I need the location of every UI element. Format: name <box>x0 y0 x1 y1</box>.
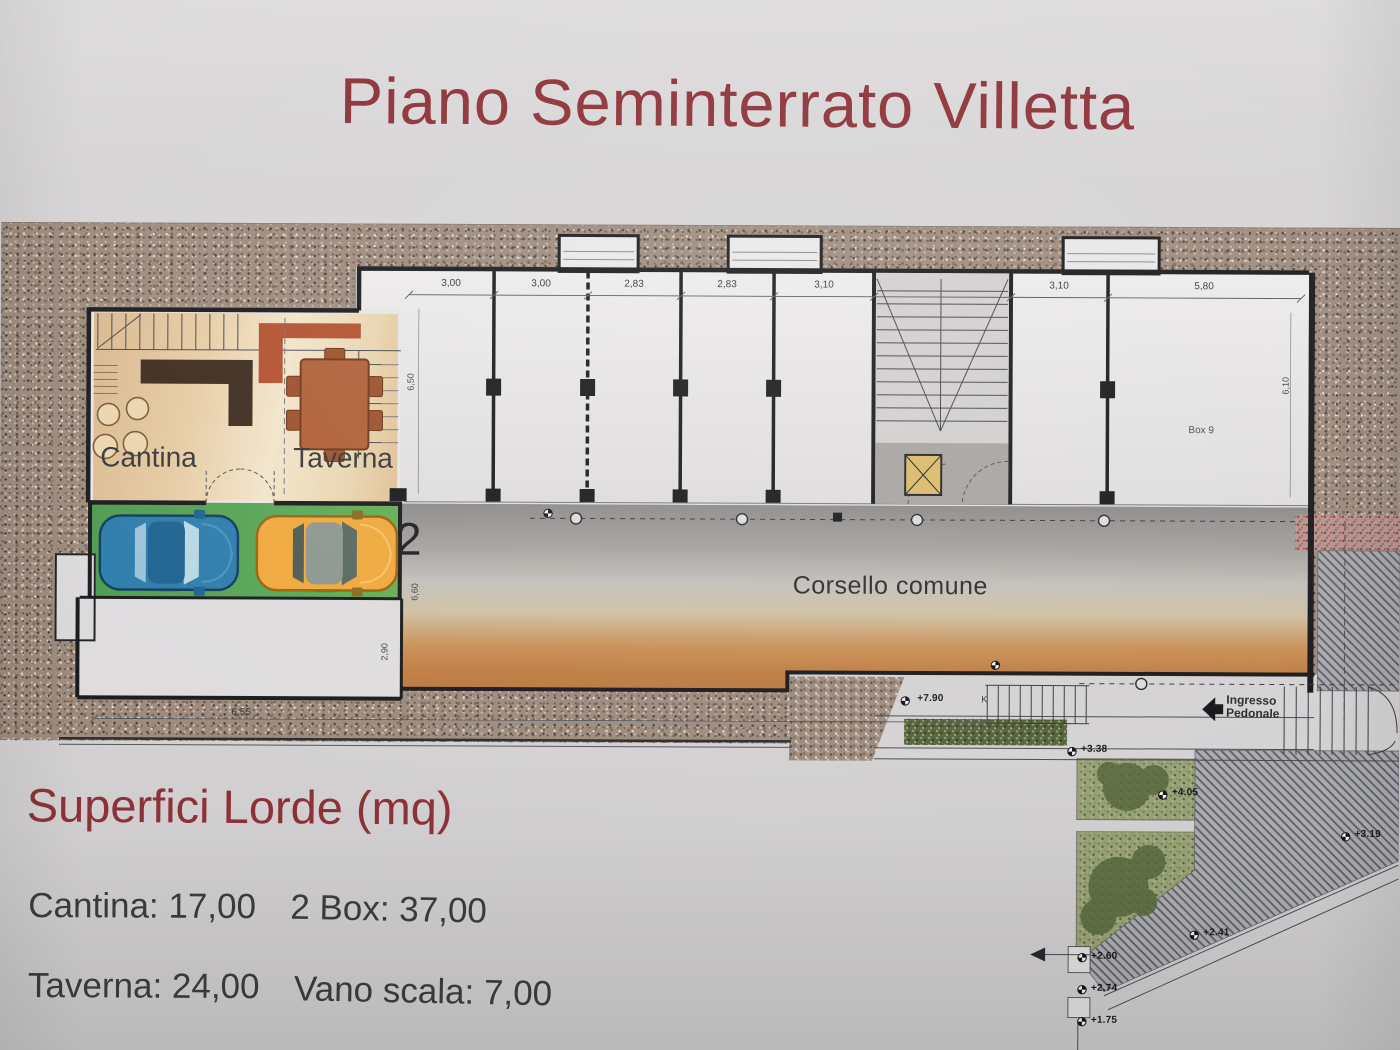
dim-box2: 3,00 <box>531 279 551 290</box>
elev-tip-3: +1.75 <box>1091 1016 1117 1027</box>
ingresso-pedonale-label: Ingresso Pedonale <box>1226 694 1301 721</box>
dim-room-depth: 2,90 <box>380 643 390 661</box>
elev-walkway: +7.90 <box>917 694 943 705</box>
elev-garden-mid: +4.05 <box>1172 788 1198 799</box>
interior-doors <box>206 469 274 503</box>
elev-path-right: +3.19 <box>1355 830 1381 841</box>
elev-path-mid: +2.41 <box>1203 928 1229 939</box>
elev-garden-top: +3.38 <box>1081 745 1107 756</box>
yellow-car <box>257 510 397 597</box>
dim-box5: 3,10 <box>814 280 834 291</box>
photo-wrapper: Piano Seminterrato Villetta Cantina Tave… <box>0 0 1400 1050</box>
dim-box1: 3,00 <box>441 279 461 290</box>
legend-vano-scala: Vano scala: 7,00 <box>294 971 553 1013</box>
scanned-floorplan-page: Piano Seminterrato Villetta Cantina Tave… <box>0 0 1400 1050</box>
legend-box: 2 Box: 37,00 <box>290 890 487 931</box>
dim-box9-depth: 6,10 <box>1282 377 1292 395</box>
legend-heading: Superfici Lorde (mq) <box>27 780 453 833</box>
dim-garage-depth: 6,50 <box>407 373 417 391</box>
legend-cantina: Cantina: 17,00 <box>28 888 256 926</box>
dim-box3: 2,83 <box>624 280 644 291</box>
blue-car <box>99 509 238 596</box>
corsello-label: Corsello comune <box>793 572 988 599</box>
room-label-taverna: Taverna <box>293 443 393 473</box>
dim-corsello-width: 6,60 <box>411 583 421 601</box>
elev-tip-2: +2.74 <box>1091 984 1117 995</box>
box9-label: Box 9 <box>1188 426 1214 437</box>
dim-box4: 2,83 <box>717 280 737 291</box>
legend-taverna: Taverna: 24,00 <box>28 968 260 1006</box>
dim-box6: 3,10 <box>1049 282 1069 293</box>
elev-tip-1: +2.60 <box>1091 952 1117 963</box>
page-title: Piano Seminterrato Villetta <box>340 67 1136 141</box>
garage-number-label: 2 <box>396 515 422 563</box>
stair-letter-label: K <box>981 695 987 704</box>
room-label-cantina: Cantina <box>100 442 197 472</box>
stairwell <box>875 273 1009 505</box>
dim-room-width: 6,55 <box>231 708 251 719</box>
dim-box9: 5,80 <box>1194 282 1214 293</box>
